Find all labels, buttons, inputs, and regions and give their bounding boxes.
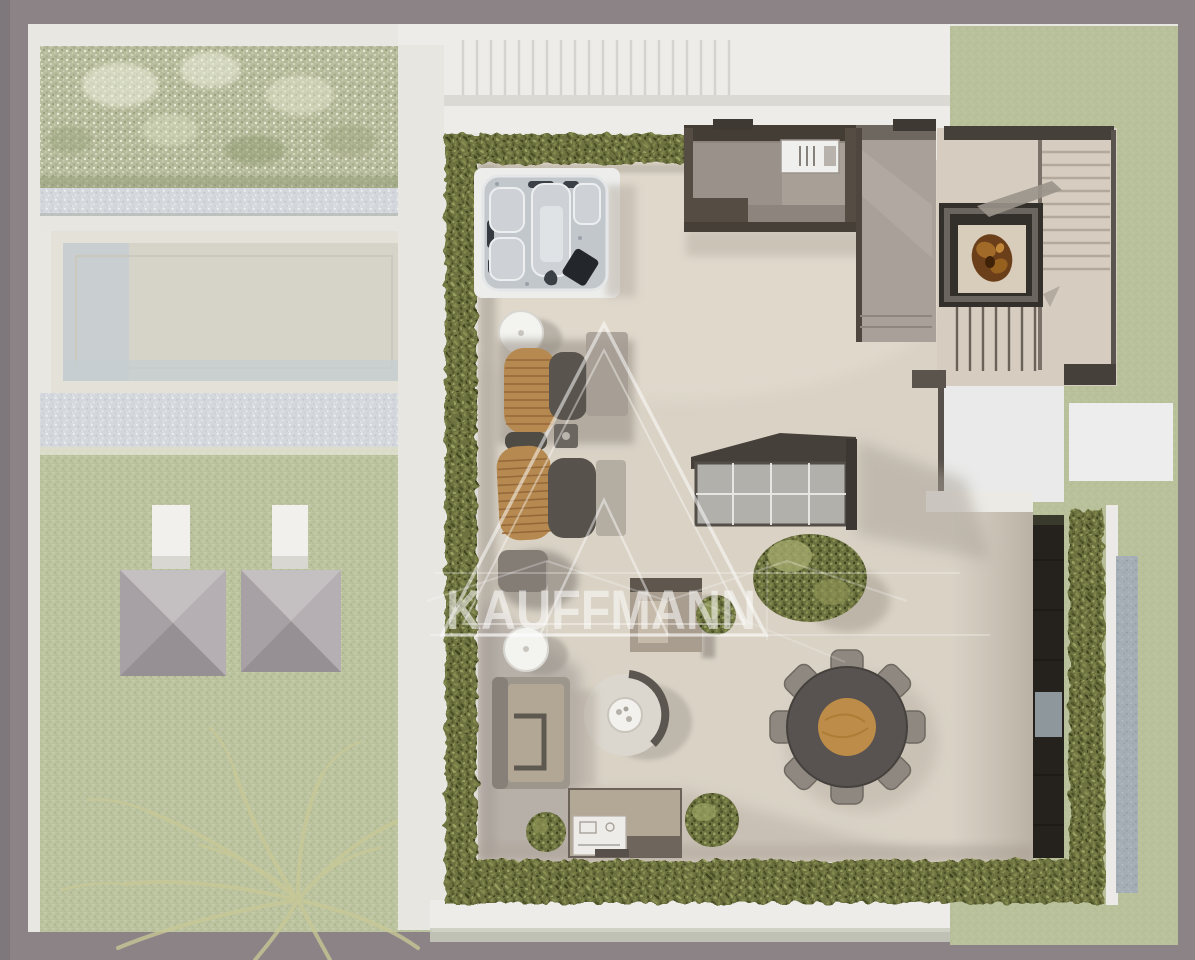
svg-text:KAUFFMANN: KAUFFMANN xyxy=(446,578,756,641)
